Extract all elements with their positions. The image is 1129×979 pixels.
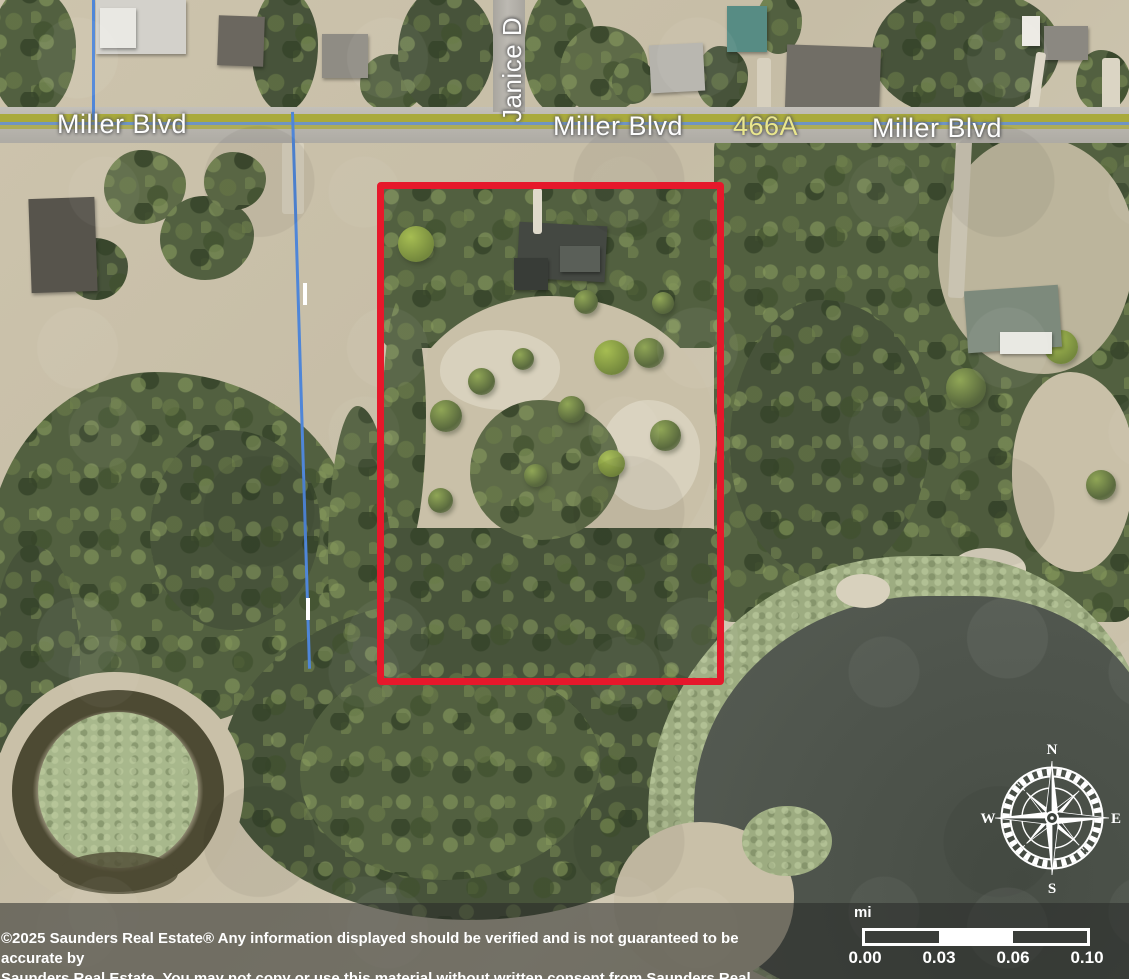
scale-tick-010: 0.10 xyxy=(1070,948,1103,968)
compass-rose-icon: N E S W xyxy=(977,733,1127,903)
scale-tick-0: 0.00 xyxy=(848,948,881,968)
map-scale-bar: mi 0.00 0.03 0.06 0.10 xyxy=(846,900,1102,976)
scale-tick-003: 0.03 xyxy=(922,948,955,968)
scale-bar-segments xyxy=(862,928,1090,946)
scale-tick-006: 0.06 xyxy=(996,948,1029,968)
street-label-miller-blvd-east: Miller Blvd xyxy=(872,113,1002,144)
copyright-line-1: ©2025 Saunders Real Estate® Any informat… xyxy=(1,929,791,969)
copyright-line-2: Saunders Real Estate. You may not copy o… xyxy=(1,969,791,979)
property-boundary-outline xyxy=(377,182,724,685)
street-label-janice-dr: Janice D xyxy=(497,0,528,122)
aerial-map: Miller Blvd Miller Blvd 466A Miller Blvd… xyxy=(0,0,1129,979)
compass-west-label: W xyxy=(981,811,996,827)
compass-east-label: E xyxy=(1111,811,1121,827)
street-label-miller-blvd-center: Miller Blvd xyxy=(553,111,683,142)
compass-south-label: S xyxy=(1048,881,1056,897)
street-label-miller-blvd-west: Miller Blvd xyxy=(57,109,187,140)
route-label-466a: 466A xyxy=(733,111,798,142)
compass-north-label: N xyxy=(1047,742,1058,758)
scale-tick-labels: 0.00 0.03 0.06 0.10 xyxy=(862,948,1090,970)
copyright-disclaimer: ©2025 Saunders Real Estate® Any informat… xyxy=(1,929,791,979)
scale-unit-label: mi xyxy=(854,904,872,921)
